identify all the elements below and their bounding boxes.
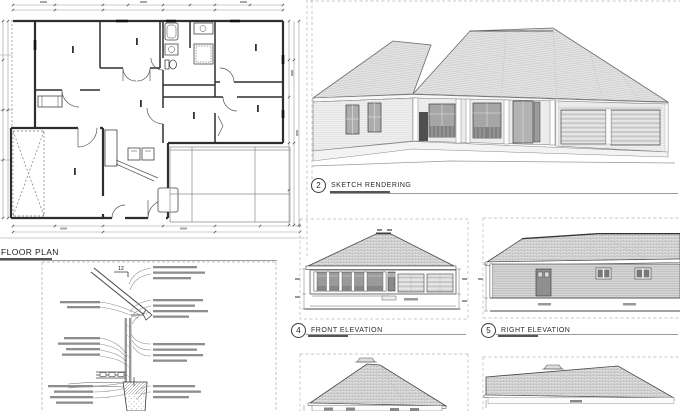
floor-plan-label-text: FLOOR PLAN: [1, 247, 59, 257]
wall-sliver: [312, 406, 442, 411]
foundation-ground: [304, 294, 460, 309]
fascia-band: [306, 266, 456, 270]
right-elevation-drawing: [478, 216, 680, 321]
floor-plan-label: FLOOR PLAN: [1, 247, 59, 257]
slope-marker: 12: [114, 266, 128, 277]
ground-line: [312, 161, 675, 166]
bath-fixtures: [165, 23, 213, 69]
patio-lines: [170, 147, 290, 222]
garage-wall: [556, 101, 668, 152]
foundation: [68, 377, 147, 411]
dimension-lines: [0, 5, 305, 238]
porch-wall: [413, 98, 556, 145]
leader-lines: [93, 268, 151, 400]
dimension-text-blob: [478, 278, 483, 280]
sketch-rendering-badge: 2: [311, 178, 326, 193]
wall-sliver: [488, 398, 674, 404]
roof: [313, 28, 668, 102]
interior-walls: [35, 21, 283, 143]
label-underline: [308, 335, 348, 337]
roof: [310, 364, 446, 406]
wall: [490, 264, 680, 298]
roof: [308, 229, 454, 266]
floor-plan-drawing: [0, 0, 310, 258]
front-elevation-drawing: [294, 216, 472, 321]
sketch-rendering-drawing: [310, 0, 680, 196]
rear-elevation-partial-drawing: [294, 350, 472, 411]
label-underline: [306, 334, 466, 335]
garage-attic-x: [13, 131, 44, 216]
right-elevation-badge: 5: [481, 323, 496, 338]
kitchen-fixtures: [38, 96, 178, 212]
roof: [486, 366, 674, 398]
wall-section-detail-drawing: 12: [38, 260, 283, 411]
sketch-rendering-label-text: SKETCH RENDERING: [331, 182, 411, 189]
label-underline: [498, 335, 538, 337]
label-underline: [496, 334, 678, 335]
walls: [310, 270, 456, 294]
roof: [487, 234, 680, 263]
roof-slope-value: 12: [118, 266, 124, 272]
floor-assembly: [96, 372, 126, 378]
roof-vent: [355, 358, 377, 362]
exterior-walls: [11, 21, 283, 218]
front-elevation-badge: 4: [291, 323, 306, 338]
left-elevation-partial-drawing: [478, 350, 680, 411]
dimension-ticks: [2, 4, 301, 233]
detail-dashed-border: [42, 262, 276, 411]
label-underline: [330, 193, 678, 194]
roof-vent: [542, 365, 564, 369]
foundation-ground: [490, 298, 680, 311]
dimension-ticks: [484, 264, 488, 311]
dimension-text-blob: [404, 298, 418, 301]
drawing-sheet: { "colors": { "background": "#ffffff", "…: [0, 0, 680, 411]
